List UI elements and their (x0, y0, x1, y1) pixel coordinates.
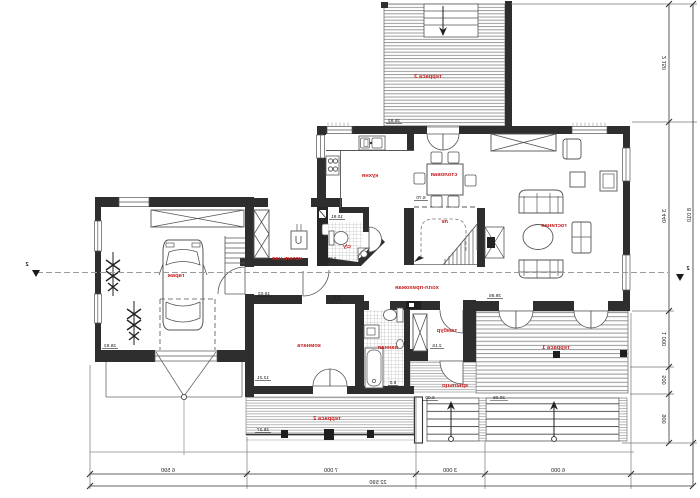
svg-text:гостиная: гостиная (541, 223, 567, 229)
svg-text:2.15: 2.15 (432, 343, 442, 349)
svg-text:3 440: 3 440 (662, 209, 668, 223)
svg-text:35.92: 35.92 (388, 118, 400, 124)
svg-text:6 000: 6 000 (551, 468, 565, 474)
svg-text:гараж: гараж (167, 273, 184, 279)
svg-text:2: 2 (25, 262, 28, 268)
svg-text:2.65: 2.65 (327, 256, 337, 262)
svg-text:столовая: столовая (431, 172, 458, 178)
svg-text:900: 900 (662, 414, 668, 423)
svg-text:3 000: 3 000 (443, 468, 457, 474)
svg-text:терраса 1: терраса 1 (541, 345, 569, 351)
svg-text:2 150: 2 150 (662, 56, 668, 70)
svg-text:25.27: 25.27 (257, 427, 269, 433)
svg-text:6.00: 6.00 (425, 395, 435, 401)
svg-text:10.91: 10.91 (331, 214, 343, 220)
svg-text:16.02: 16.02 (258, 291, 270, 297)
svg-text:терраса 3: терраса 3 (413, 74, 441, 80)
svg-text:7 000: 7 000 (324, 468, 338, 474)
svg-text:5.0: 5.0 (389, 380, 396, 386)
svg-text:6 590: 6 590 (161, 468, 175, 474)
svg-text:8 010: 8 010 (687, 208, 693, 222)
svg-text:лк: лк (442, 219, 449, 225)
svg-text:котельная: котельная (272, 256, 302, 262)
svg-text:комната: комната (297, 343, 321, 349)
svg-text:6.2: 6.2 (333, 294, 340, 300)
svg-text:39.86: 39.86 (489, 293, 501, 299)
svg-text:1 000: 1 000 (662, 332, 668, 346)
svg-text:26.92: 26.92 (104, 343, 116, 349)
svg-text:с/у: с/у (342, 244, 351, 250)
svg-text:20.05: 20.05 (493, 395, 505, 401)
svg-text:12.21: 12.21 (257, 375, 269, 381)
svg-text:крыльцо: крыльцо (442, 383, 468, 389)
svg-text:500: 500 (662, 375, 668, 384)
svg-text:терраса 2: терраса 2 (313, 416, 341, 422)
svg-text:ванная: ванная (378, 345, 398, 351)
svg-text:холл-прихожая: холл-прихожая (395, 285, 439, 291)
svg-text:22 590: 22 590 (369, 480, 386, 486)
svg-text:кухня: кухня (362, 173, 378, 179)
svg-text:2: 2 (686, 266, 689, 272)
svg-text:тамбур: тамбур (436, 327, 457, 334)
svg-text:8.70: 8.70 (416, 195, 426, 201)
